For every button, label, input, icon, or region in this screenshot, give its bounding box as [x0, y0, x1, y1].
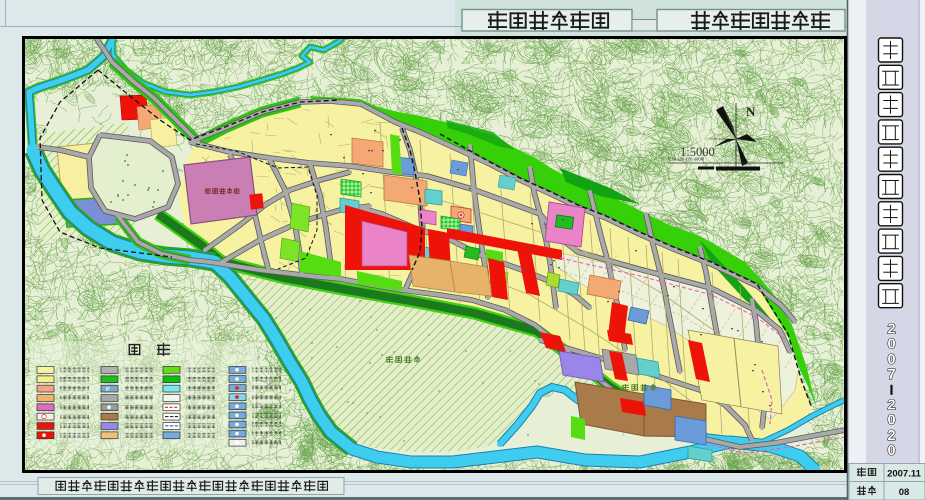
svg-text:0: 0 — [887, 352, 895, 368]
svg-text:08: 08 — [899, 487, 910, 498]
svg-text:0: 0 — [887, 337, 895, 353]
svg-text:0: 0 — [887, 443, 895, 459]
svg-text:N: N — [746, 104, 756, 119]
svg-text:2: 2 — [887, 398, 895, 414]
svg-text:0: 0 — [887, 413, 895, 429]
svg-text:0 50 100 200 400M: 0 50 100 200 400M — [668, 157, 705, 162]
svg-text:P: P — [106, 387, 110, 393]
svg-text:2: 2 — [887, 428, 895, 444]
svg-text:2: 2 — [887, 322, 895, 338]
svg-text:7: 7 — [887, 367, 895, 383]
svg-text:2007.11: 2007.11 — [887, 469, 922, 480]
